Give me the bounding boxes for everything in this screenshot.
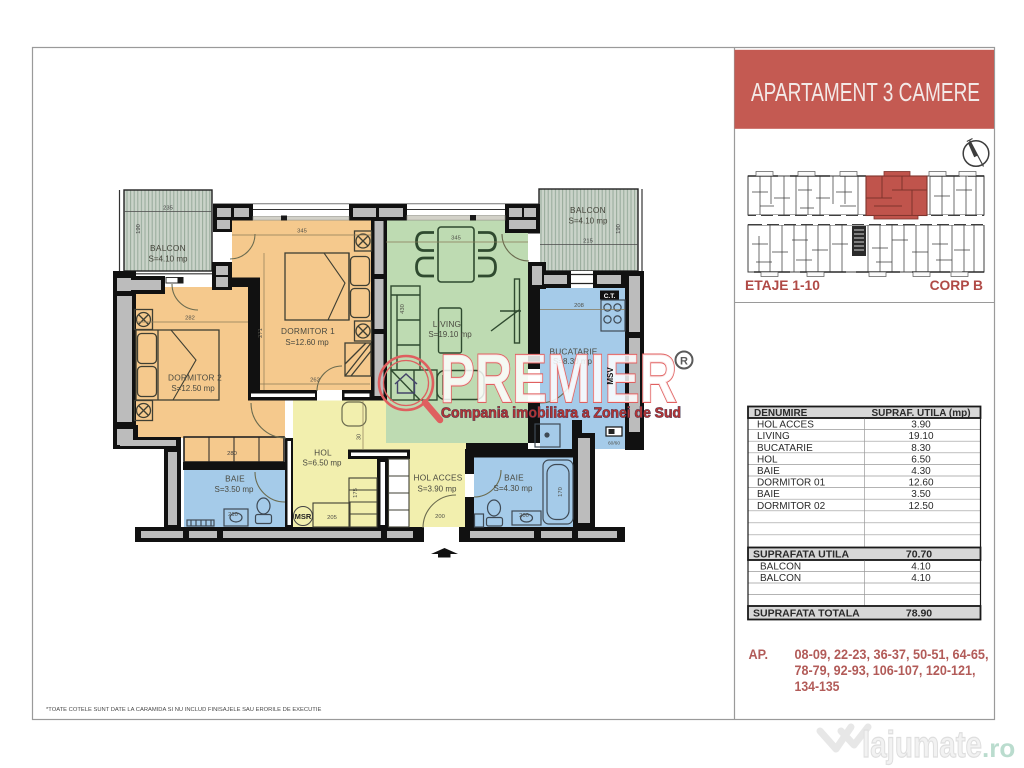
svg-text:175: 175 xyxy=(353,488,359,498)
svg-text:BAIE: BAIE xyxy=(225,474,245,484)
svg-text:200: 200 xyxy=(435,514,445,520)
svg-text:lajumate: lajumate xyxy=(862,724,982,765)
svg-text:ETAJE 1-10: ETAJE 1-10 xyxy=(745,278,820,293)
svg-text:60/60: 60/60 xyxy=(608,441,620,447)
svg-text:APARTAMENT 3 CAMERE: APARTAMENT 3 CAMERE xyxy=(751,79,980,107)
svg-text:08-09, 22-23, 36-37, 50-51, 64: 08-09, 22-23, 36-37, 50-51, 64-65, xyxy=(795,647,989,662)
svg-text:AP.: AP. xyxy=(749,647,769,662)
svg-text:HOL ACCES: HOL ACCES xyxy=(757,420,814,431)
svg-text:190: 190 xyxy=(616,224,622,234)
svg-text:HOL: HOL xyxy=(314,448,332,458)
svg-text:345: 345 xyxy=(297,229,307,235)
svg-text:3.50: 3.50 xyxy=(911,489,931,500)
svg-text:4.10: 4.10 xyxy=(911,573,931,584)
svg-text:12.50: 12.50 xyxy=(908,501,933,512)
svg-text:DORMITOR 02: DORMITOR 02 xyxy=(757,501,826,512)
svg-text:208: 208 xyxy=(574,303,584,309)
svg-text:12.60: 12.60 xyxy=(908,478,933,489)
svg-text:215: 215 xyxy=(583,239,593,245)
svg-text:S=3.90 mp: S=3.90 mp xyxy=(418,485,457,494)
svg-text:S=3.50 mp: S=3.50 mp xyxy=(215,485,254,494)
svg-text:LIVING: LIVING xyxy=(433,319,461,329)
svg-text:280: 280 xyxy=(227,451,237,457)
svg-text:S=4.10 mp: S=4.10 mp xyxy=(149,255,188,264)
svg-text:R: R xyxy=(680,356,688,368)
svg-text:70.70: 70.70 xyxy=(906,549,932,561)
svg-text:DORMITOR 1: DORMITOR 1 xyxy=(281,326,335,336)
svg-text:19.10: 19.10 xyxy=(908,431,933,442)
svg-text:*TOATE COTELE SUNT DATE LA CAR: *TOATE COTELE SUNT DATE LA CARAMIDA SI N… xyxy=(46,707,321,713)
svg-text:MSR: MSR xyxy=(295,512,312,521)
svg-text:BALCON: BALCON xyxy=(570,205,606,215)
svg-text:BUCATARIE: BUCATARIE xyxy=(757,443,813,454)
svg-text:HOL ACCES: HOL ACCES xyxy=(414,473,463,483)
svg-text:8.30: 8.30 xyxy=(911,443,931,454)
svg-text:HOL: HOL xyxy=(757,454,778,465)
svg-text:BAIE: BAIE xyxy=(504,473,524,483)
svg-text:345: 345 xyxy=(451,236,461,242)
svg-text:SUPRAFATA TOTALA: SUPRAFATA TOTALA xyxy=(753,608,860,620)
svg-text:LIVING: LIVING xyxy=(757,431,790,442)
svg-text:30: 30 xyxy=(357,434,363,440)
svg-text:BALCON: BALCON xyxy=(760,561,801,572)
svg-text:4.30: 4.30 xyxy=(911,466,931,477)
svg-text:262: 262 xyxy=(310,378,320,384)
svg-text:271: 271 xyxy=(258,328,264,338)
svg-text:430: 430 xyxy=(400,304,406,314)
svg-text:Compania imobiliara a Zonei de: Compania imobiliara a Zonei de Sud xyxy=(441,406,681,422)
svg-text:78-79, 92-93, 106-107, 120-121: 78-79, 92-93, 106-107, 120-121, xyxy=(795,663,976,678)
svg-text:S=6.50 mp: S=6.50 mp xyxy=(303,459,342,468)
svg-text:200: 200 xyxy=(519,513,529,519)
svg-text:210: 210 xyxy=(228,512,238,518)
svg-text:205: 205 xyxy=(327,515,337,521)
svg-text:DORMITOR 01: DORMITOR 01 xyxy=(757,478,826,489)
svg-text:CORP B: CORP B xyxy=(930,278,983,293)
svg-text:3.90: 3.90 xyxy=(911,420,931,431)
svg-text:6.50: 6.50 xyxy=(911,454,931,465)
svg-text:S=4.10 mp: S=4.10 mp xyxy=(569,217,608,226)
svg-text:282: 282 xyxy=(185,316,195,322)
svg-text:S=12.60 mp: S=12.60 mp xyxy=(285,338,329,347)
svg-text:BAIE: BAIE xyxy=(757,489,780,500)
svg-text:C.T.: C.T. xyxy=(604,293,616,300)
svg-text:78.90: 78.90 xyxy=(906,608,932,620)
svg-text:DENUMIRE: DENUMIRE xyxy=(754,408,808,419)
svg-text:134-135: 134-135 xyxy=(795,679,840,694)
svg-text:S=19.10 mp: S=19.10 mp xyxy=(428,330,472,339)
svg-text:235: 235 xyxy=(163,206,173,212)
svg-text:4.10: 4.10 xyxy=(911,561,931,572)
svg-text:SUPRAF. UTILA (mp): SUPRAF. UTILA (mp) xyxy=(871,408,970,419)
svg-text:SUPRAFATA UTILA: SUPRAFATA UTILA xyxy=(753,549,849,561)
svg-text:170: 170 xyxy=(558,487,564,497)
svg-text:DORMITOR 2: DORMITOR 2 xyxy=(168,373,222,383)
svg-text:BAIE: BAIE xyxy=(757,466,780,477)
svg-text:S=12.50 mp: S=12.50 mp xyxy=(171,384,215,393)
svg-text:190: 190 xyxy=(136,224,142,234)
svg-text:.ro: .ro xyxy=(982,733,1015,763)
svg-text:MSV: MSV xyxy=(606,367,615,385)
svg-text:BALCON: BALCON xyxy=(150,243,186,253)
svg-text:S=4.30 mp: S=4.30 mp xyxy=(494,484,533,493)
svg-text:BALCON: BALCON xyxy=(760,573,801,584)
